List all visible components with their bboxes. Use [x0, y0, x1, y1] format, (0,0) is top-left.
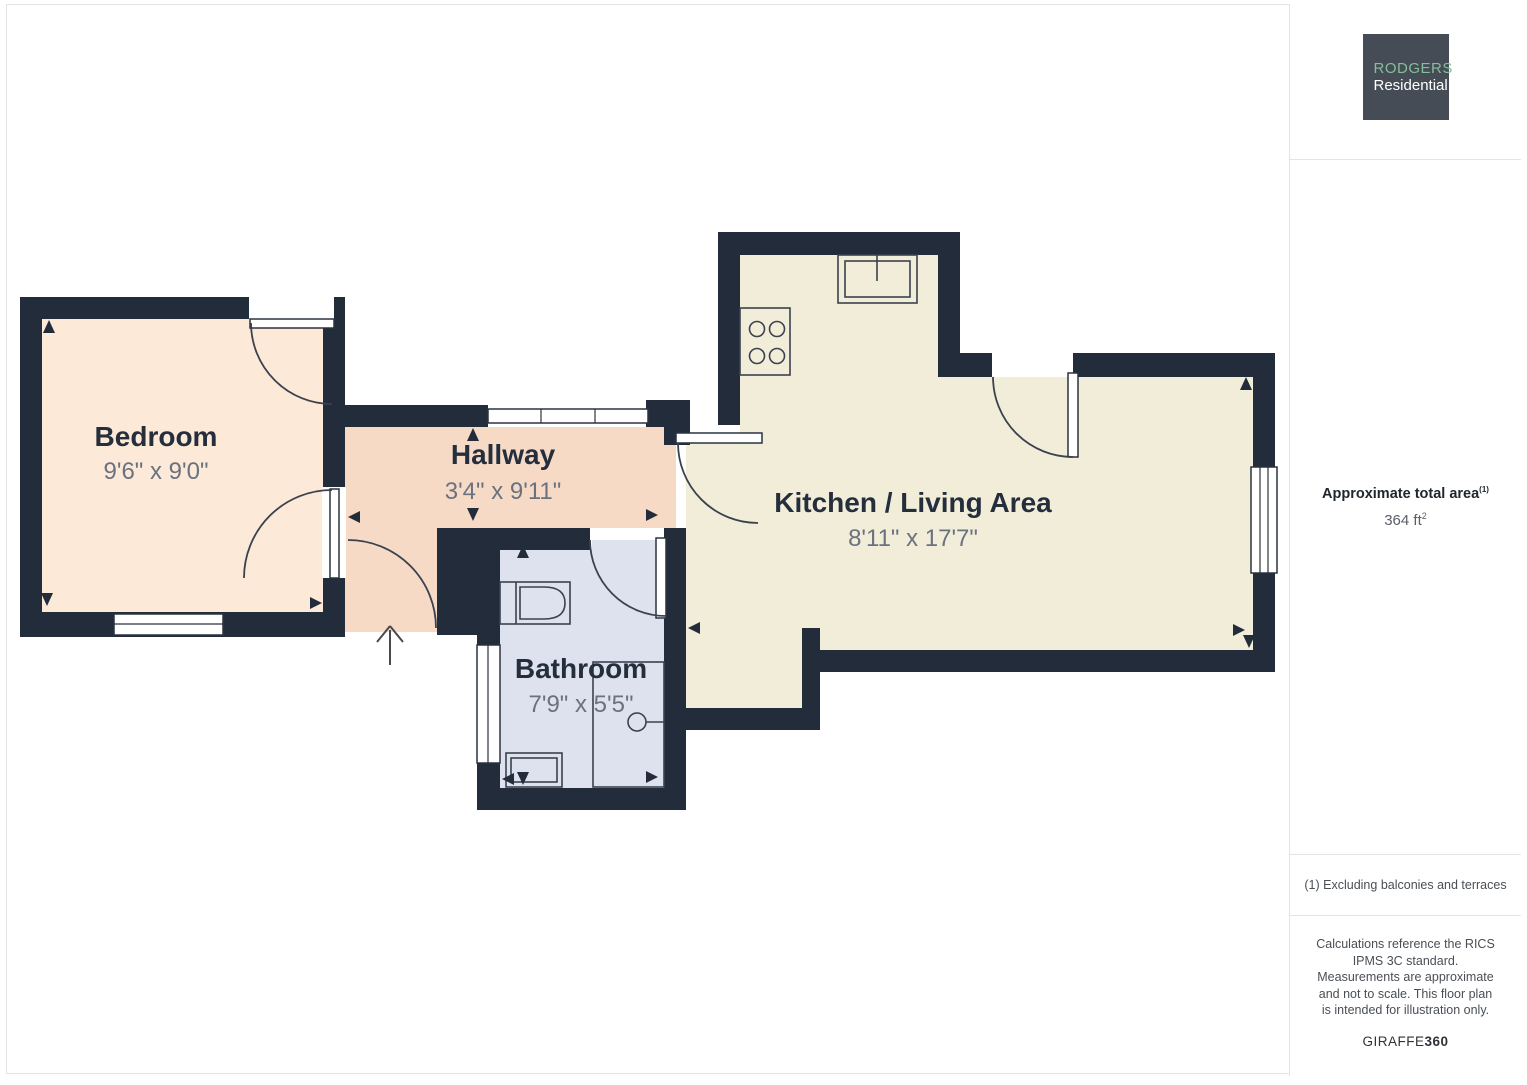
logo-section: RODGERS Residential	[1290, 4, 1521, 160]
total-area-label: Approximate total area(1)	[1322, 485, 1489, 502]
logo-line-2: Residential	[1374, 77, 1449, 94]
bedroom-dimensions: 9'6" x 9'0"	[104, 458, 209, 485]
info-sidebar: RODGERS Residential Approximate total ar…	[1289, 4, 1521, 1076]
total-area-value: 364 ft2	[1384, 511, 1427, 529]
total-area-footnote-marker: (1)	[1479, 485, 1489, 494]
giraffe360-brand: GIRAFFE360	[1313, 1034, 1498, 1049]
bathroom-window	[477, 645, 500, 763]
bedroom-label: Bedroom	[95, 421, 218, 452]
total-area-label-text: Approximate total area	[1322, 486, 1479, 502]
living-area-window	[1251, 467, 1277, 573]
footnote-text: (1) Excluding balconies and terraces	[1304, 878, 1506, 892]
toilet-icon	[500, 582, 570, 624]
total-area-section: Approximate total area(1) 364 ft2	[1290, 160, 1521, 854]
disclaimer-section: Calculations reference the RICS IPMS 3C …	[1290, 916, 1521, 1076]
room-fills	[42, 255, 1253, 788]
total-area-value-sup: 2	[1422, 511, 1427, 521]
bedroom-top-door-gap	[249, 296, 334, 320]
rodgers-residential-logo: RODGERS Residential	[1363, 34, 1449, 120]
bathroom-label: Bathroom	[515, 653, 647, 684]
hallway-label: Hallway	[451, 439, 556, 470]
brand-normal: GIRAFFE	[1362, 1034, 1424, 1049]
total-area-value-text: 364 ft	[1384, 512, 1422, 529]
kitchen-sink-icon	[838, 255, 917, 303]
stove-hob-icon	[740, 308, 790, 375]
floor-plan: Bedroom 9'6" x 9'0" Hallway 3'4" x 9'11"…	[0, 0, 1290, 1080]
brand-bold: 360	[1424, 1034, 1448, 1049]
logo-line-1: RODGERS	[1374, 60, 1449, 77]
kitchen-living-dimensions: 8'11" x 17'7"	[848, 525, 978, 552]
bedroom-window	[114, 614, 223, 635]
hallway-floor-lower	[345, 528, 437, 632]
bathroom-dimensions: 7'9" x 5'5"	[529, 691, 634, 718]
disclaimer-text: Calculations reference the RICS IPMS 3C …	[1313, 936, 1498, 1019]
footnote-section: (1) Excluding balconies and terraces	[1290, 854, 1521, 916]
bathroom-doorway-floor	[592, 540, 656, 552]
hallway-window	[488, 409, 648, 423]
kitchen-living-label: Kitchen / Living Area	[774, 487, 1052, 518]
hallway-dimensions: 3'4" x 9'11"	[445, 478, 562, 505]
